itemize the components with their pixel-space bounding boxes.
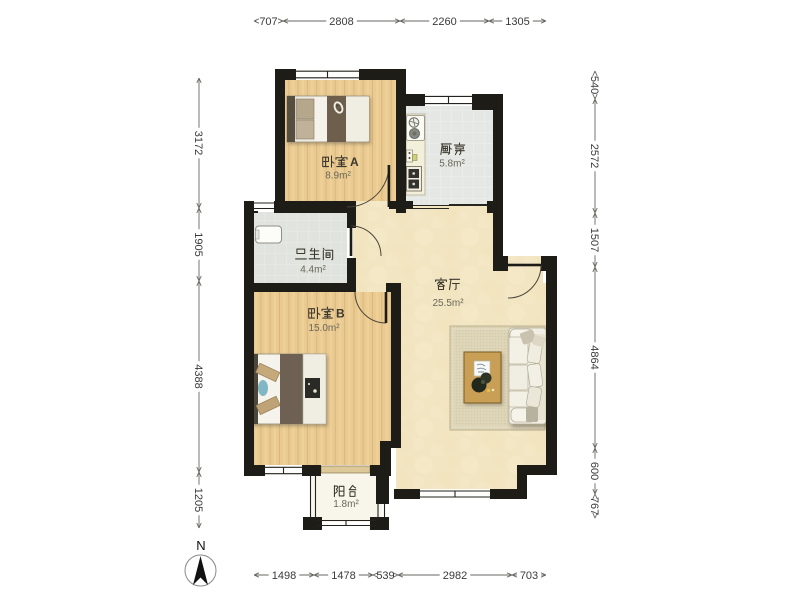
- svg-text:4388: 4388: [192, 364, 204, 388]
- svg-text:2982: 2982: [443, 570, 467, 582]
- svg-text:5.8m²: 5.8m²: [439, 159, 465, 170]
- svg-text:4.4m²: 4.4m²: [300, 265, 326, 276]
- svg-text:767: 767: [588, 497, 600, 515]
- svg-text:2260: 2260: [432, 16, 456, 28]
- svg-text:540: 540: [588, 76, 600, 94]
- svg-text:A: A: [350, 155, 359, 169]
- svg-text:703: 703: [520, 570, 538, 582]
- svg-text:4864: 4864: [588, 345, 600, 369]
- svg-text:1205: 1205: [192, 488, 204, 512]
- svg-text:2808: 2808: [329, 16, 353, 28]
- svg-text:N: N: [196, 538, 205, 553]
- svg-text:1.8m²: 1.8m²: [333, 499, 359, 510]
- svg-text:1305: 1305: [505, 16, 529, 28]
- svg-text:600: 600: [588, 462, 600, 480]
- svg-text:1478: 1478: [331, 570, 355, 582]
- svg-text:25.5m²: 25.5m²: [432, 298, 464, 309]
- svg-text:1905: 1905: [192, 232, 204, 256]
- svg-text:1507: 1507: [588, 228, 600, 252]
- svg-text:539: 539: [376, 570, 394, 582]
- svg-text:B: B: [336, 307, 345, 321]
- svg-text:15.0m²: 15.0m²: [308, 323, 340, 334]
- svg-text:8.9m²: 8.9m²: [325, 171, 351, 182]
- svg-text:707: 707: [259, 16, 277, 28]
- svg-text:3172: 3172: [192, 131, 204, 155]
- svg-text:2572: 2572: [588, 144, 600, 168]
- svg-text:1498: 1498: [272, 570, 296, 582]
